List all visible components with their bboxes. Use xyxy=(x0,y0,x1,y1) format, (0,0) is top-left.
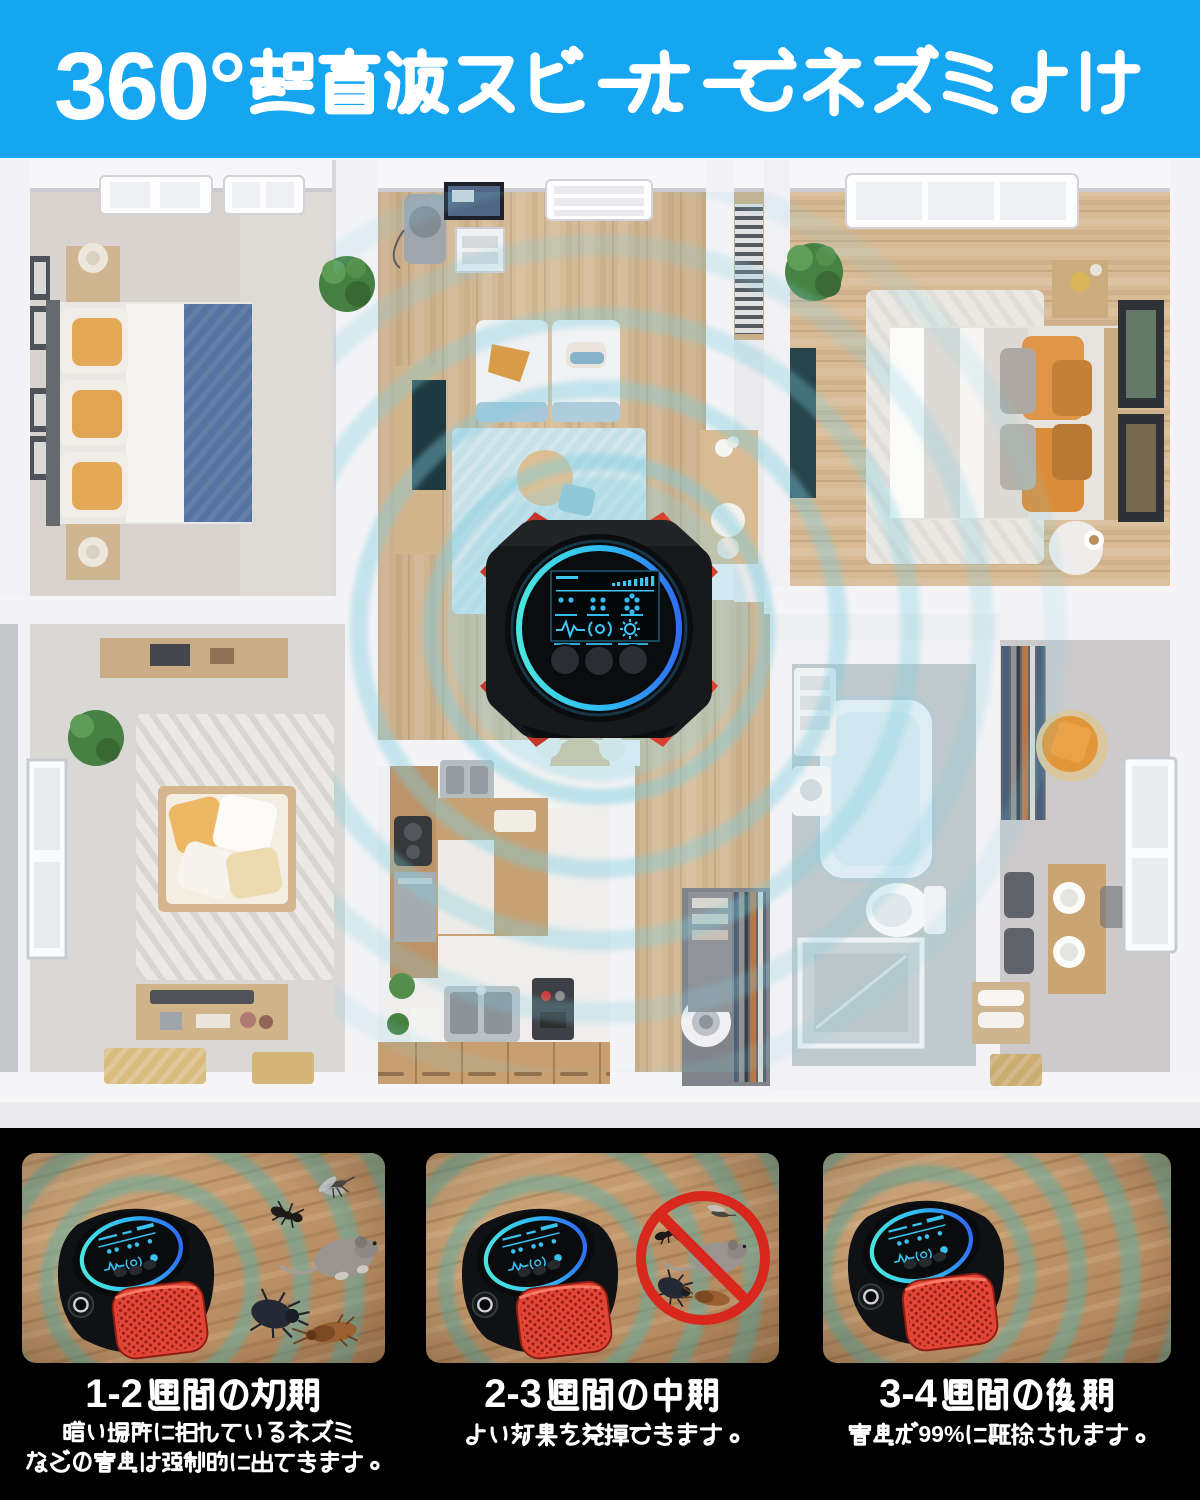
svg-text:2-3: 2-3 xyxy=(484,1372,542,1416)
svg-text:3-4: 3-4 xyxy=(879,1372,938,1416)
svg-text:1-2: 1-2 xyxy=(85,1372,143,1416)
svg-text:360°: 360° xyxy=(54,33,245,140)
svg-text:99%: 99% xyxy=(918,1421,964,1447)
